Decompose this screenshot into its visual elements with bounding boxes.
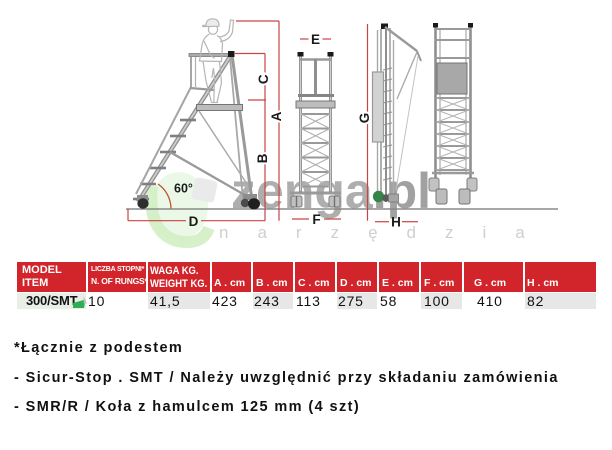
svg-text:H: H: [391, 215, 401, 230]
svg-text:B: B: [255, 153, 270, 163]
svg-text:E: E: [311, 32, 320, 47]
svg-text:F: F: [312, 212, 320, 227]
svg-text:G: G: [357, 113, 372, 124]
svg-text:A: A: [269, 111, 284, 121]
svg-text:narzędzia: narzędzia: [219, 223, 554, 242]
svg-text:D: D: [189, 214, 199, 229]
svg-text:60°: 60°: [174, 182, 193, 196]
svg-text:C: C: [256, 74, 271, 84]
